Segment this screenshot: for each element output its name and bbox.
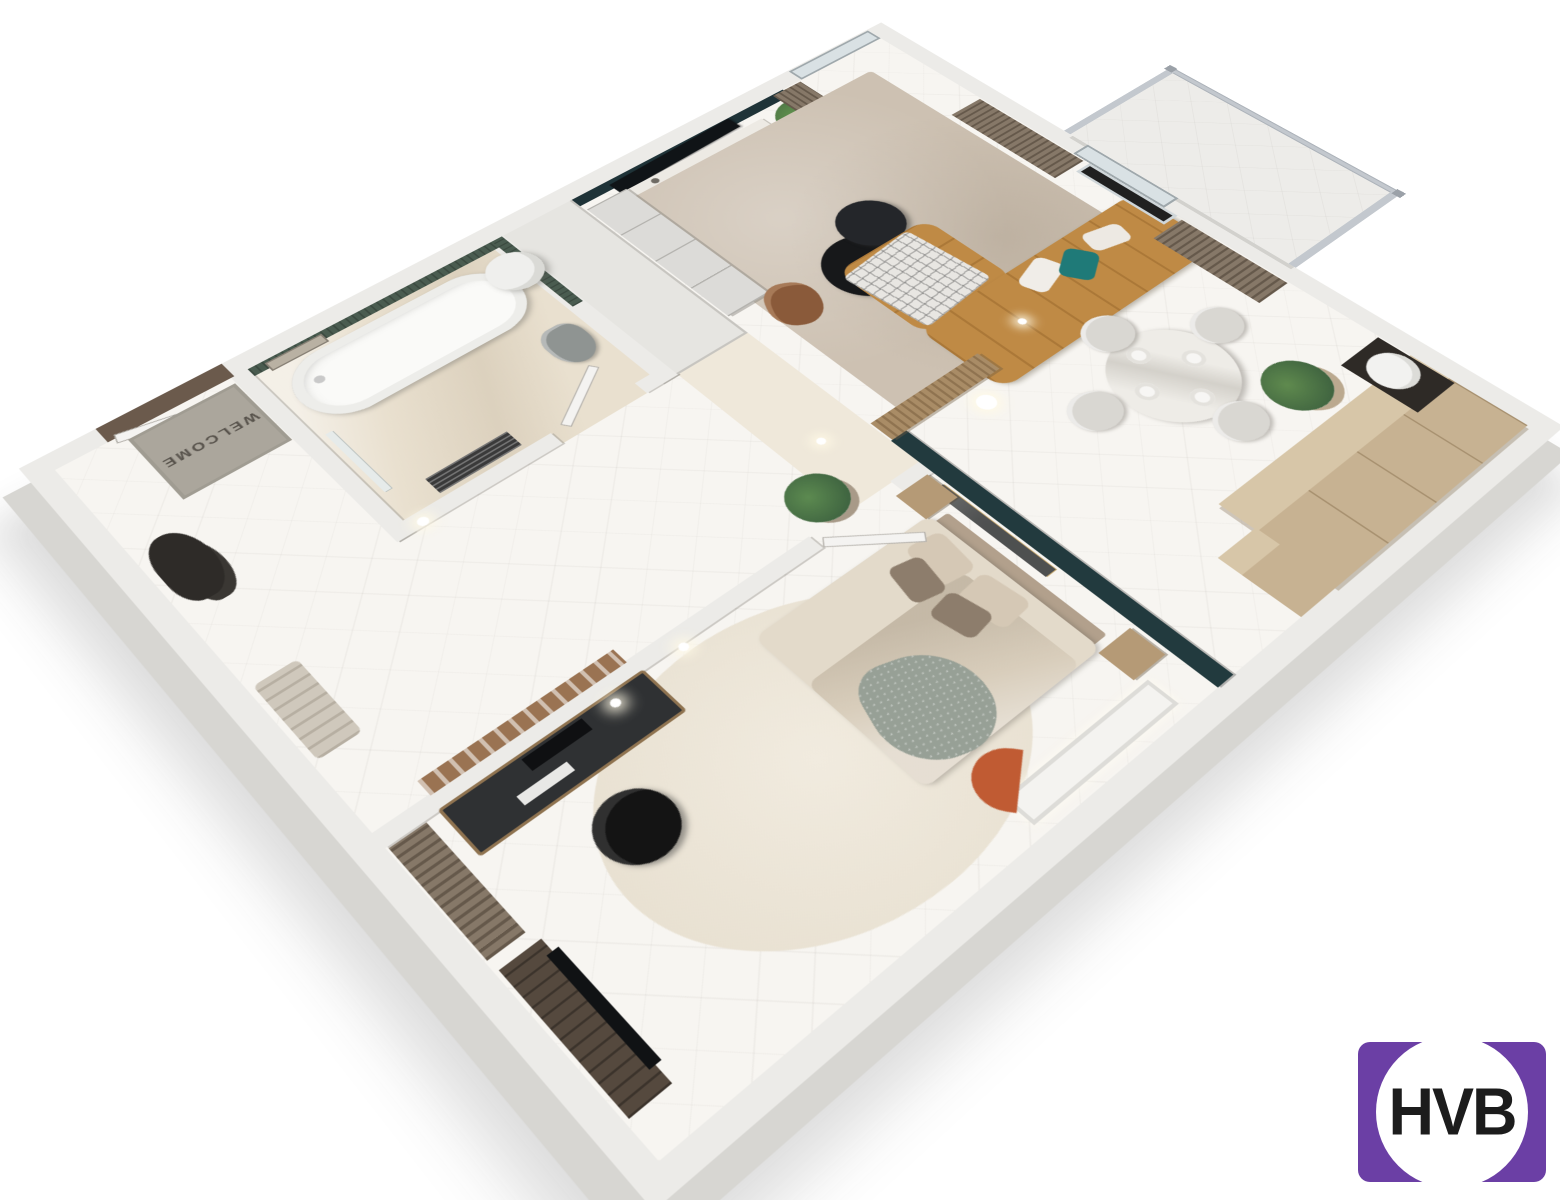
coat-rack <box>136 522 239 610</box>
floorplan-3d-view: WELCOME <box>55 38 1528 1161</box>
floor-lamp <box>972 392 1002 413</box>
hall-bench-with-blanket <box>253 659 363 760</box>
hvb-logo: HVB <box>1358 1042 1546 1182</box>
floorplan-stage: WELCOME <box>0 0 1560 1200</box>
bedroom-media-console <box>499 939 672 1119</box>
hvb-logo-text: HVB <box>1358 1042 1546 1182</box>
bedroom-curtain-west <box>389 822 526 960</box>
apartment-shell: WELCOME <box>19 22 1560 1200</box>
